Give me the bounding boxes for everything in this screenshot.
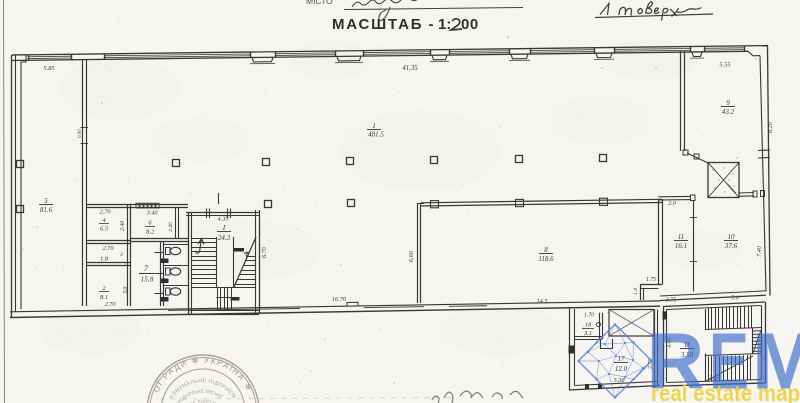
svg-text:1.8: 1.8 [100, 256, 109, 263]
svg-text:3.1: 3.1 [583, 330, 592, 337]
svg-text:3.0: 3.0 [123, 287, 129, 295]
svg-text:118.6: 118.6 [538, 255, 554, 263]
svg-text:6.5: 6.5 [100, 226, 109, 233]
svg-text:24.3: 24.3 [218, 234, 231, 242]
svg-text:7: 7 [144, 263, 149, 273]
svg-text:2.70: 2.70 [103, 245, 115, 252]
svg-text:81.6: 81.6 [40, 206, 53, 214]
svg-text:МАСШТАБ: МАСШТАБ [332, 16, 423, 33]
svg-text:1.4: 1.4 [632, 288, 639, 295]
svg-text:8.2: 8.2 [146, 229, 155, 236]
svg-text:1: 1 [372, 122, 376, 130]
svg-text:4.35: 4.35 [217, 216, 229, 223]
svg-text:00: 00 [461, 16, 479, 33]
svg-text:real estate map: real estate map [651, 380, 800, 403]
svg-text:15.8: 15.8 [141, 276, 154, 284]
svg-text:2.70: 2.70 [100, 209, 112, 216]
svg-text:9: 9 [726, 99, 730, 107]
svg-text:3.40: 3.40 [146, 210, 159, 217]
svg-text:481.5: 481.5 [368, 131, 384, 139]
svg-text:7.40: 7.40 [756, 245, 763, 257]
svg-text:14.5: 14.5 [537, 298, 548, 305]
svg-text:2.0: 2.0 [668, 201, 676, 207]
svg-text:8: 8 [544, 246, 548, 254]
svg-text:2: 2 [102, 285, 106, 292]
svg-text:0.90: 0.90 [78, 129, 83, 138]
svg-text:1.70: 1.70 [584, 313, 594, 319]
svg-text:6: 6 [148, 220, 152, 227]
svg-text:5.85: 5.85 [43, 65, 54, 72]
svg-text:37.6: 37.6 [724, 242, 738, 250]
svg-text:12.0: 12.0 [615, 365, 628, 373]
svg-text:2.40: 2.40 [119, 221, 126, 231]
svg-text:I: I [222, 223, 226, 232]
svg-text:6.70: 6.70 [261, 246, 268, 258]
svg-text:3.75: 3.75 [665, 298, 677, 304]
svg-text:4: 4 [102, 217, 106, 224]
svg-text:6.60: 6.60 [408, 250, 415, 262]
svg-text:5: 5 [44, 197, 48, 205]
svg-text:8.20: 8.20 [767, 121, 774, 133]
svg-text:10: 10 [728, 233, 736, 241]
svg-text:11: 11 [678, 233, 684, 241]
svg-text:8.1: 8.1 [100, 294, 108, 301]
svg-text:МІСТО: МІСТО [306, 0, 333, 6]
svg-text:2.40: 2.40 [167, 222, 174, 232]
svg-text:2.70: 2.70 [105, 301, 117, 308]
svg-text:18: 18 [585, 322, 592, 329]
svg-text:5.55: 5.55 [719, 62, 730, 69]
svg-text:5.0: 5.0 [731, 296, 739, 302]
svg-text:-: - [429, 16, 434, 33]
svg-text:1.75: 1.75 [646, 277, 656, 283]
svg-text:41.35: 41.35 [402, 65, 418, 72]
svg-text:3: 3 [119, 252, 123, 258]
svg-text:43.2: 43.2 [722, 108, 735, 116]
svg-text:17: 17 [618, 355, 626, 363]
svg-text:16.1: 16.1 [675, 242, 687, 250]
svg-text:16.70: 16.70 [332, 296, 347, 303]
